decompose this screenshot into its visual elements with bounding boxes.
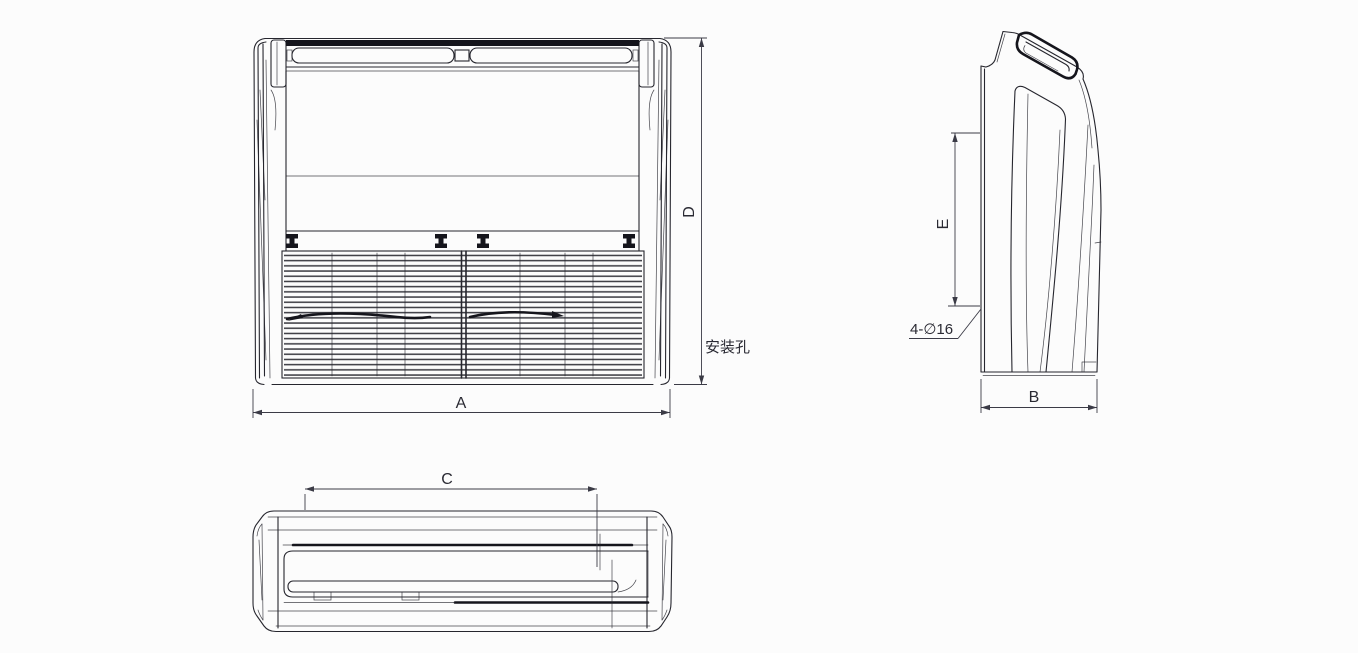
dimension-c: C [305, 471, 597, 567]
dim-label-b: B [1029, 389, 1040, 406]
technical-drawing-page: A D 安装孔 [0, 0, 1358, 653]
side-outline [981, 32, 1101, 376]
side-contour-lines [1011, 86, 1094, 372]
side-top-vent [1017, 33, 1078, 78]
front-left-cap [254, 39, 286, 385]
hole-spec-text: 4-∅16 [910, 321, 953, 338]
dimension-b: B [981, 379, 1097, 413]
bottom-view: C [253, 471, 672, 632]
aircon-dimension-drawing: A D 安装孔 [0, 0, 1358, 653]
dim-label-d: D [681, 206, 698, 218]
bar-tab [402, 592, 419, 600]
bottom-outline [253, 511, 672, 632]
air-guide-bar [288, 581, 618, 592]
dim-label-a: A [456, 395, 467, 412]
clip [623, 234, 635, 248]
front-clip-row [286, 234, 635, 248]
dim-label-c: C [441, 471, 453, 488]
hole-spec-note: 4-∅16 [909, 309, 981, 339]
dim-label-e: E [935, 219, 952, 230]
vent-slot-left [292, 48, 454, 63]
bar-tab [314, 592, 331, 600]
front-main-panel [286, 71, 639, 251]
clip [477, 234, 489, 248]
bottom-recess [283, 534, 648, 628]
clip [435, 234, 447, 248]
front-grille [282, 251, 644, 378]
clip [286, 234, 298, 248]
hole-spec-leader [958, 309, 981, 339]
dimension-e: E [935, 133, 980, 306]
front-view: A D 安装孔 [253, 38, 750, 418]
dimension-a: A [253, 389, 670, 418]
front-top-vent [286, 40, 639, 71]
vent-dark-strip [286, 40, 639, 46]
vent-center-knob [455, 50, 469, 61]
side-view: E 4-∅16 B [909, 32, 1101, 414]
mounting-hole-note: 安装孔 [705, 339, 750, 356]
vent-slot-right [470, 48, 632, 63]
